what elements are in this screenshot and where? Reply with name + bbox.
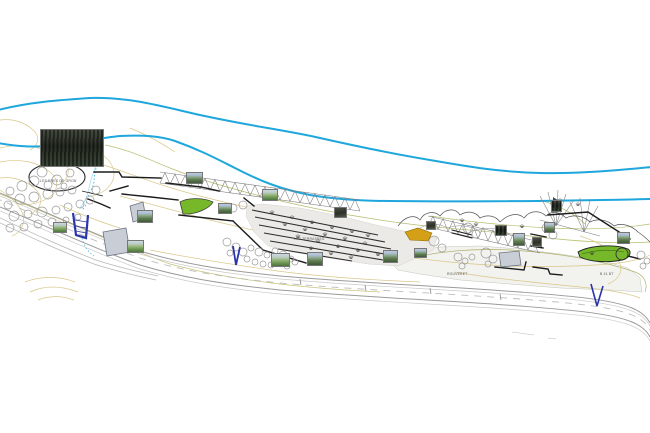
- building: [499, 251, 521, 267]
- building: [103, 228, 130, 256]
- photo-thumbnail: [617, 232, 630, 244]
- photo-thumbnail: [414, 248, 427, 258]
- photo-thumbnail: [53, 222, 67, 233]
- photo-thumbnail: [40, 129, 104, 167]
- photo-thumbnail: [544, 222, 555, 233]
- photo-thumbnail: [262, 189, 278, 201]
- label-les-terrasses: LES TERRASSES: [294, 237, 325, 241]
- site-plan-drawing: LES PRES DE GRON LES TERRASSES ROUVERET …: [0, 0, 650, 433]
- photo-thumbnail: [127, 240, 144, 253]
- photo-thumbnail: [334, 207, 347, 218]
- label-parcel-ref: B 41 BT: [600, 272, 614, 276]
- photo-thumbnail: [271, 253, 290, 267]
- lawn-left: [180, 199, 213, 214]
- photo-thumbnail: [137, 210, 153, 223]
- photo-thumbnail: [218, 203, 232, 214]
- photo-thumbnail: [551, 200, 562, 212]
- photo-thumbnail: [513, 233, 525, 246]
- photo-thumbnail: [426, 221, 436, 230]
- stair-marker: [233, 246, 240, 265]
- photo-thumbnail: [495, 225, 507, 236]
- label-rouveret: ROUVERET: [447, 272, 467, 276]
- label-les-pres-de-gron: LES PRES DE GRON: [40, 179, 77, 183]
- photo-thumbnail: [532, 237, 542, 247]
- photo-thumbnail: [383, 250, 398, 263]
- site-plan-canvas: LES PRES DE GRON LES TERRASSES ROUVERET …: [0, 0, 650, 433]
- photo-thumbnail: [186, 172, 203, 184]
- photo-thumbnail: [307, 252, 323, 266]
